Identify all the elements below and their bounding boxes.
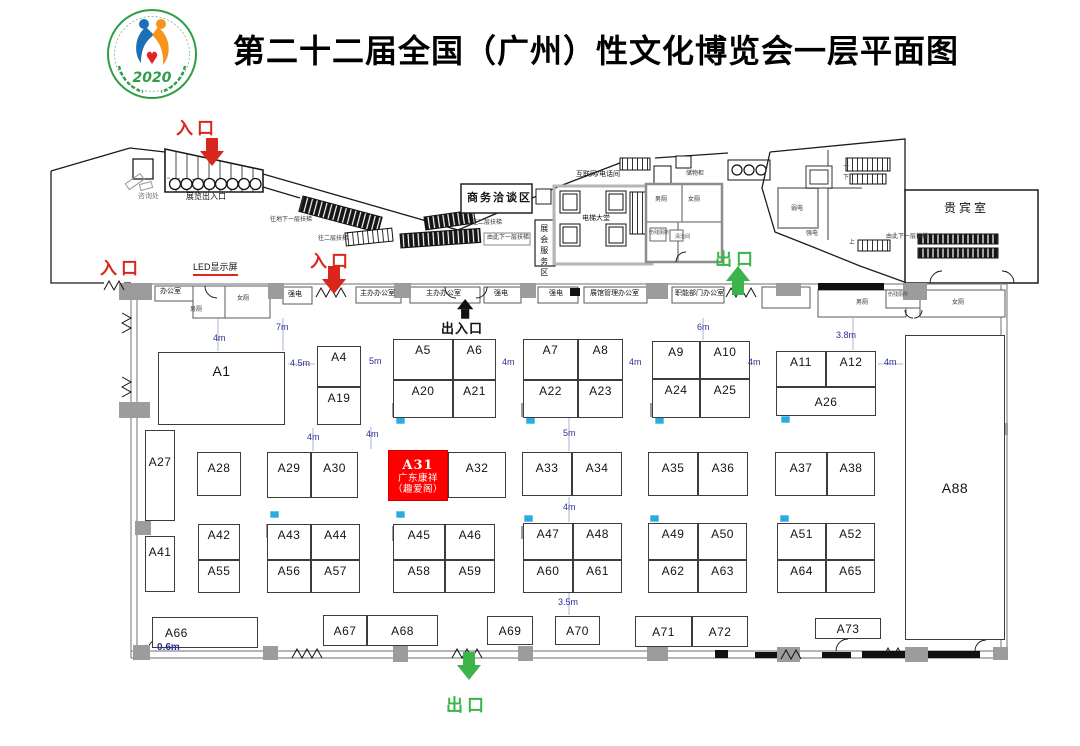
booth-A68: A68	[367, 615, 438, 646]
booth-A9: A9	[652, 341, 700, 379]
functional-dept-office-label: 职能部门办公室	[675, 290, 724, 298]
booth-A88: A88	[905, 335, 1005, 640]
dimension-label: 4m	[366, 429, 379, 439]
locker-label: 储物柜	[686, 171, 704, 178]
dimension-label: 4m	[884, 357, 897, 367]
mens-toilet-label-3: 男厕	[856, 300, 868, 307]
booth-A60: A60	[523, 560, 573, 593]
exit-top-arrow-icon	[726, 266, 750, 281]
dimension-label: 5m	[369, 356, 382, 366]
booth-A51: A51	[777, 523, 826, 560]
booth-A5: A5	[393, 339, 453, 380]
exit-bottom-label: 出口	[446, 691, 488, 716]
accessible-toilet-label-1: 伤残厕所	[649, 231, 669, 237]
booth-A42: A42	[198, 524, 240, 560]
booth-A44: A44	[311, 524, 360, 560]
booth-A63: A63	[698, 560, 747, 593]
booth-A71: A71	[635, 616, 692, 647]
dimension-label: 6m	[697, 322, 710, 332]
womens-toilet-label-3: 女厕	[952, 300, 964, 307]
booth-A58: A58	[393, 560, 445, 593]
booth-A49: A49	[648, 523, 698, 560]
booth-A25: A25	[700, 379, 750, 418]
dimension-label: 4m	[502, 357, 515, 367]
dimension-label: 4m	[748, 357, 761, 367]
escalator-down-label-2: 由此下一层扶梯	[886, 234, 928, 241]
booth-A37: A37	[775, 452, 827, 496]
floorplan-content: A1A4A19A5A6A20A21A7A8A22A23A9A10A24A25A1…	[0, 0, 1080, 746]
high-voltage-label-1: 强电	[806, 231, 818, 238]
entrance-top-label: 入口	[176, 114, 218, 139]
escalator-2f-label: 往二层扶梯	[318, 236, 348, 243]
booth-A46: A46	[445, 524, 495, 560]
escalator-basement-label: 往地下一层扶梯	[270, 217, 312, 224]
booth-A72: A72	[692, 616, 748, 647]
low-voltage-label: 弱电	[791, 206, 803, 213]
booth-A29: A29	[267, 452, 311, 498]
booth-A55: A55	[198, 560, 240, 593]
booth-A24: A24	[652, 379, 700, 418]
stairs-up-label-2: 上	[849, 240, 855, 247]
entrance-mid-arrow-icon	[322, 279, 346, 294]
booth-A70: A70	[555, 616, 600, 645]
booth-A65: A65	[826, 560, 875, 593]
dimension-label: 4m	[563, 502, 576, 512]
booth-A23: A23	[578, 380, 623, 418]
booth-A69: A69	[487, 616, 533, 645]
booth-A33: A33	[522, 452, 572, 496]
exhibition-gate-label: 展览出入口	[186, 193, 226, 202]
stairs-down-label: 下	[843, 175, 849, 182]
booth-A7: A7	[523, 339, 578, 380]
office-label: 办公室	[160, 288, 181, 296]
booth-A61: A61	[573, 560, 622, 593]
booth-A28: A28	[197, 452, 241, 496]
organizer-office-label-2: 主办办公室	[426, 290, 461, 298]
dimension-label: 4m	[307, 432, 320, 442]
accessible-toilet-label-2: 伤残厕所	[888, 293, 908, 299]
booth-A1: A1	[158, 352, 285, 425]
booth-A52: A52	[826, 523, 875, 560]
escalator-down-label: 由此下一层扶梯	[487, 235, 529, 242]
booth-A67: A67	[323, 615, 367, 646]
service-zone-label: 展会服务区	[539, 224, 548, 279]
dimension-label: 4m	[629, 357, 642, 367]
booth-A62: A62	[648, 560, 698, 593]
booth-A59: A59	[445, 560, 495, 593]
exit-bottom-arrow-icon	[457, 665, 481, 680]
entrance-exit-gate-label: 出入口	[441, 318, 483, 337]
dimension-label: 3.5m	[558, 597, 578, 607]
booth-A26: A26	[776, 387, 876, 416]
mens-toilet-label-2: 男厕	[190, 307, 202, 314]
booth-A19: A19	[317, 387, 361, 425]
booth-A10: A10	[700, 341, 750, 379]
mens-toilet-label-1: 男厕	[655, 197, 667, 204]
booth-A4: A4	[317, 346, 361, 387]
dimension-label: 3.8m	[836, 330, 856, 340]
vip-room-label: 贵宾室	[944, 202, 989, 215]
elevator-lobby-label: 电梯大堂	[582, 215, 610, 223]
high-voltage-label-2: 强电	[288, 291, 302, 299]
entrance-top-arrow-icon	[200, 151, 224, 166]
stairs-up-label-1: 上	[843, 162, 849, 169]
booth-A73: A73	[815, 618, 881, 639]
booth-A31: A31广东康祥（趣爱阁）	[388, 450, 448, 501]
booth-A41: A41	[145, 536, 175, 592]
booth-A27: A27	[145, 430, 175, 521]
booth-A35: A35	[648, 452, 698, 496]
dimension-label: 0.6m	[157, 642, 180, 653]
booth-A45: A45	[393, 524, 445, 560]
booth-A31-line-1: 广东康祥	[398, 473, 438, 484]
escalator-2f-label-2: 往二层扶梯	[472, 220, 502, 227]
booth-A48: A48	[573, 523, 622, 560]
womens-toilet-label-2: 女厕	[237, 296, 249, 303]
info-desk-label: 咨询处	[138, 193, 159, 201]
booth-A32: A32	[448, 452, 506, 498]
booth-A56: A56	[267, 560, 311, 593]
booth-A21: A21	[453, 380, 496, 418]
womens-toilet-label-1: 女厕	[688, 197, 700, 204]
booth-A36: A36	[698, 452, 748, 496]
internet-phone-label: 互联网/电话间	[576, 171, 620, 179]
booth-A12: A12	[826, 351, 876, 387]
dimension-label: 7m	[276, 322, 289, 332]
business-zone-label: 商务洽谈区	[467, 192, 532, 204]
booth-A50: A50	[698, 523, 747, 560]
booth-A6: A6	[453, 339, 496, 380]
dimension-label: 4.5m	[290, 358, 310, 368]
led-screen-label: LED显示屏	[193, 263, 238, 276]
cleaning-room-label: 清洁间	[675, 235, 690, 241]
floor-plan-page: 2020 第二十二届全国（广州）性文化博览会一层平面图	[0, 0, 1080, 746]
booth-A22: A22	[523, 380, 578, 418]
hall-management-office-label: 展馆管理办公室	[590, 290, 639, 298]
dimension-label: 5m	[563, 428, 576, 438]
booth-A31-line-2: （趣爱阁）	[393, 484, 443, 495]
dimension-label: 4m	[213, 333, 226, 343]
booth-A31-line-0: A31	[402, 458, 433, 473]
booth-A11: A11	[776, 351, 826, 387]
booth-A30: A30	[311, 452, 358, 498]
high-voltage-label-4: 强电	[549, 290, 563, 298]
booth-A57: A57	[311, 560, 360, 593]
booth-A43: A43	[267, 524, 311, 560]
booth-A47: A47	[523, 523, 573, 560]
high-voltage-label-3: 强电	[494, 290, 508, 298]
organizer-office-label-1: 主办办公室	[360, 290, 395, 298]
booth-A38: A38	[827, 452, 875, 496]
booth-A20: A20	[393, 380, 453, 418]
entrance-exit-gate-arrow-icon	[457, 299, 473, 309]
booth-A8: A8	[578, 339, 623, 380]
booth-A64: A64	[777, 560, 826, 593]
booth-A34: A34	[572, 452, 622, 496]
entrance-left-label: 入口	[100, 254, 142, 279]
